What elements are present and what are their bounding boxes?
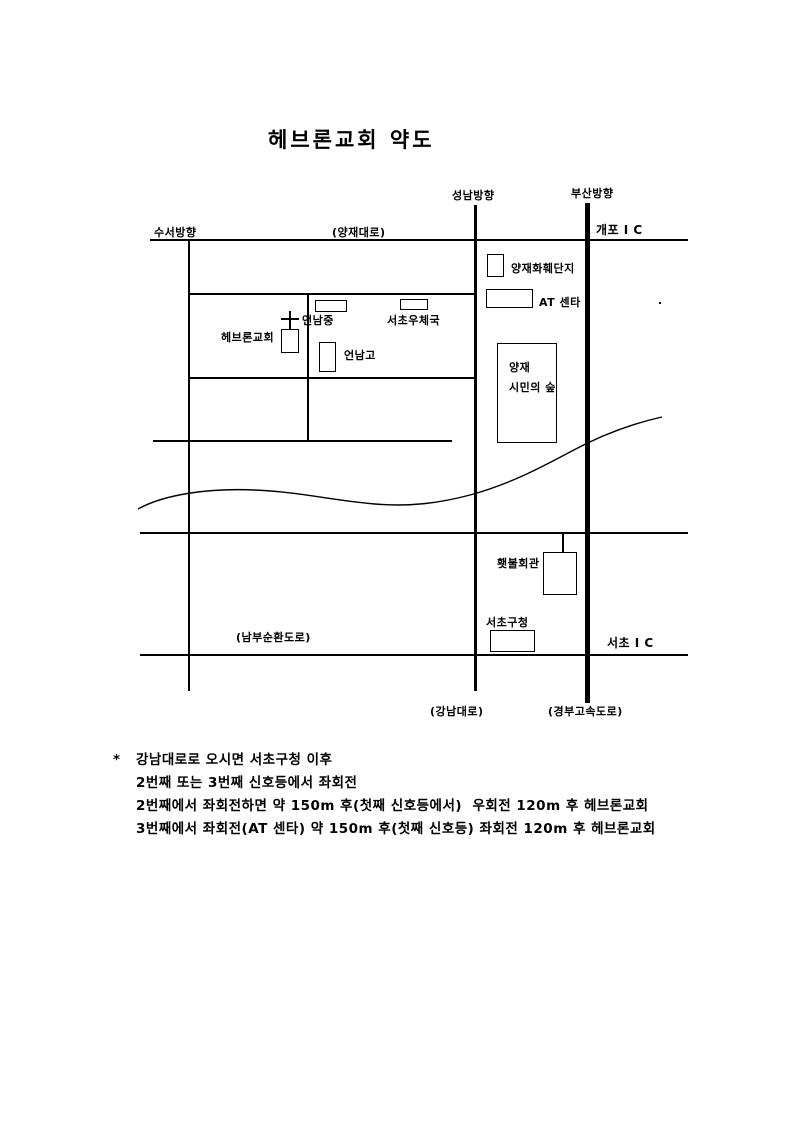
building-eonnam-middle-school xyxy=(315,300,347,312)
notes-line-2: 2번째 또는 3번째 신호등에서 좌회전 xyxy=(136,772,357,795)
label-gaepo-ic: 개포 I C xyxy=(596,224,643,237)
label-gyeongbu-expressway: (경부고속도로) xyxy=(548,705,623,718)
building-eonnam-high-school xyxy=(319,342,336,372)
street-line-middle xyxy=(153,440,452,442)
stray-dot: . xyxy=(658,294,663,307)
building-yangjae-flower-complex xyxy=(487,254,504,277)
label-busan-direction: 부산방향 xyxy=(571,187,613,200)
label-yangjae-flower-complex: 양재화훼단지 xyxy=(511,262,575,275)
label-torch-hall: 횃불회관 xyxy=(497,557,539,570)
church-cross-icon xyxy=(289,311,291,329)
building-hebron-church xyxy=(281,329,299,353)
block-line-bottom xyxy=(189,377,475,379)
label-citizens-forest-line2: 시민의 숲 xyxy=(509,381,556,394)
torch-hall-connector-line xyxy=(562,533,564,553)
notes-line-1: 강남대로로 오시면 서초구청 이후 xyxy=(136,749,332,772)
building-at-center xyxy=(486,289,533,308)
building-seocho-post-office xyxy=(400,299,428,310)
notes-bullet: * xyxy=(113,749,121,772)
stream-curve xyxy=(0,0,794,1123)
notes-line-4: 3번째에서 좌회전(AT 센타) 약 150m 후(첫째 신호등) 좌회전 12… xyxy=(136,818,656,841)
road-left-vertical-line xyxy=(188,241,190,691)
label-hebron-church: 헤브론교회 xyxy=(221,331,274,344)
notes-line-3: 2번째에서 좌회전하면 약 150m 후(첫째 신호등에서) 우회전 120m … xyxy=(136,795,649,818)
label-at-center: AT 센타 xyxy=(539,296,581,309)
scanned-map-page: 헤브론교회 약도 수서방향 (양재대로) 성남방향 부산방향 개포 I C 양재… xyxy=(0,0,794,1123)
building-torch-hall xyxy=(543,552,577,595)
road-gangnam-daero-line xyxy=(474,205,477,691)
page-title: 헤브론교회 약도 xyxy=(268,124,435,154)
label-gangnam-daero: (강남대로) xyxy=(430,705,484,718)
label-yangjae-daero: (양재대로) xyxy=(332,226,386,239)
label-seocho-gu-office: 서초구청 xyxy=(486,616,528,629)
label-seocho-ic: 서초 I C xyxy=(607,637,654,650)
label-eonnam-middle-school: 언남중 xyxy=(302,314,334,327)
label-seocho-post-office: 서초우체국 xyxy=(387,314,440,327)
label-seongnam-direction: 성남방향 xyxy=(452,189,494,202)
road-nambu-beltway-line xyxy=(140,654,688,656)
label-citizens-forest-line1: 양재 xyxy=(509,361,530,374)
label-eonnam-high-school: 언남고 xyxy=(344,349,376,362)
street-line-lower xyxy=(140,532,688,534)
label-suseo-direction: 수서방향 xyxy=(154,226,196,239)
road-gyeongbu-expressway-line xyxy=(585,203,590,703)
road-yangjae-daero-line xyxy=(150,239,688,241)
label-nambu-beltway: (남부순환도로) xyxy=(236,631,311,644)
block-line-top xyxy=(189,293,475,295)
church-cross-icon xyxy=(281,318,299,320)
building-seocho-gu-office xyxy=(490,630,535,652)
